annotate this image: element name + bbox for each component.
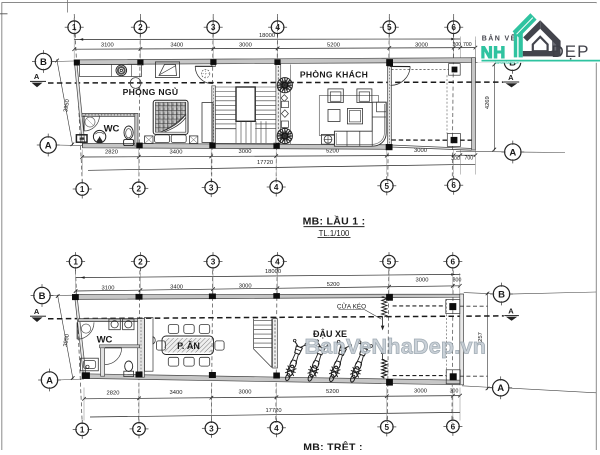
svg-text:17720: 17720 — [257, 160, 273, 166]
svg-text:A: A — [508, 73, 514, 82]
svg-text:1: 1 — [73, 258, 78, 267]
svg-text:2: 2 — [137, 425, 142, 434]
svg-text:3100: 3100 — [101, 42, 114, 48]
svg-text:3400: 3400 — [170, 390, 183, 396]
svg-text:A: A — [497, 383, 504, 394]
svg-text:2: 2 — [138, 258, 143, 267]
svg-text:3400: 3400 — [170, 149, 183, 155]
svg-text:17720: 17720 — [265, 408, 281, 414]
svg-text:300: 300 — [453, 278, 462, 284]
svg-text:TL.1/100: TL.1/100 — [319, 229, 350, 238]
svg-text:3000: 3000 — [414, 148, 427, 154]
svg-text:5: 5 — [387, 258, 392, 267]
svg-text:banvenhadep.vn: banvenhadep.vn — [495, 61, 520, 65]
svg-text:5200: 5200 — [326, 389, 339, 395]
svg-text:PHÒNG KHÁCH: PHÒNG KHÁCH — [300, 68, 368, 79]
svg-text:5200: 5200 — [327, 42, 340, 48]
svg-text:5200: 5200 — [326, 149, 339, 155]
svg-text:3000: 3000 — [239, 283, 252, 289]
svg-text:CỬA KÉO: CỬA KÉO — [337, 301, 366, 310]
svg-text:700: 700 — [464, 156, 473, 162]
svg-text:A: A — [34, 72, 40, 81]
svg-text:BanVeNhaDep.vn: BanVeNhaDep.vn — [305, 334, 487, 359]
svg-text:6: 6 — [451, 258, 456, 267]
svg-text:3000: 3000 — [415, 42, 428, 48]
svg-text:3: 3 — [211, 258, 216, 267]
svg-text:3000: 3000 — [416, 278, 429, 284]
svg-text:300: 300 — [450, 388, 459, 394]
svg-text:6: 6 — [451, 181, 456, 190]
svg-text:5: 5 — [387, 23, 392, 32]
svg-text:3000: 3000 — [414, 389, 427, 395]
svg-text:1: 1 — [80, 185, 85, 194]
svg-text:3: 3 — [209, 184, 214, 193]
svg-text:2: 2 — [138, 23, 143, 32]
svg-text:NH: NH — [481, 44, 506, 62]
svg-text:4: 4 — [274, 424, 279, 433]
svg-text:5200: 5200 — [327, 282, 340, 288]
svg-text:3400: 3400 — [170, 284, 183, 290]
svg-text:A: A — [509, 147, 516, 158]
svg-text:BẢN VẼ: BẢN VẼ — [482, 33, 517, 42]
svg-text:WC: WC — [104, 124, 120, 135]
svg-text:PHÒNG NGỦ: PHÒNG NGỦ — [123, 86, 179, 97]
svg-text:1: 1 — [72, 23, 77, 32]
svg-text:3000: 3000 — [239, 390, 252, 396]
svg-text:3: 3 — [209, 424, 214, 433]
svg-text:MB: TRỆT :: MB: TRỆT : — [303, 441, 363, 451]
svg-text:6: 6 — [451, 23, 456, 32]
svg-text:A: A — [45, 140, 52, 151]
svg-text:18000: 18000 — [265, 269, 281, 275]
svg-text:A: A — [34, 307, 40, 316]
svg-text:700: 700 — [463, 42, 472, 48]
svg-text:P. ĂN: P. ĂN — [177, 341, 200, 351]
svg-text:3000: 3000 — [239, 42, 252, 48]
svg-text:3100: 3100 — [102, 285, 115, 291]
svg-text:6: 6 — [451, 422, 456, 431]
svg-text:2820: 2820 — [107, 390, 120, 396]
svg-text:4269: 4269 — [485, 96, 491, 109]
svg-text:MB: LẦU 1 :: MB: LẦU 1 : — [303, 215, 366, 228]
svg-text:A: A — [508, 307, 514, 316]
svg-text:3: 3 — [211, 23, 216, 32]
svg-text:4: 4 — [274, 183, 279, 192]
svg-text:B: B — [39, 291, 46, 302]
svg-text:18000: 18000 — [259, 33, 275, 39]
svg-text:4: 4 — [275, 23, 280, 32]
svg-text:1: 1 — [80, 425, 85, 434]
svg-text:2820: 2820 — [105, 150, 118, 156]
svg-text:300: 300 — [451, 156, 460, 162]
svg-text:ĐẸP: ĐẸP — [552, 42, 590, 61]
svg-text:B: B — [40, 57, 47, 68]
svg-text:5: 5 — [385, 423, 390, 432]
svg-text:4: 4 — [275, 258, 280, 267]
svg-text:3400: 3400 — [170, 42, 183, 48]
svg-text:2: 2 — [137, 184, 142, 193]
svg-text:3000: 3000 — [239, 149, 252, 155]
svg-text:A: A — [46, 375, 53, 386]
svg-text:WC: WC — [97, 335, 113, 346]
svg-text:5: 5 — [385, 182, 390, 191]
svg-text:B: B — [498, 289, 505, 300]
